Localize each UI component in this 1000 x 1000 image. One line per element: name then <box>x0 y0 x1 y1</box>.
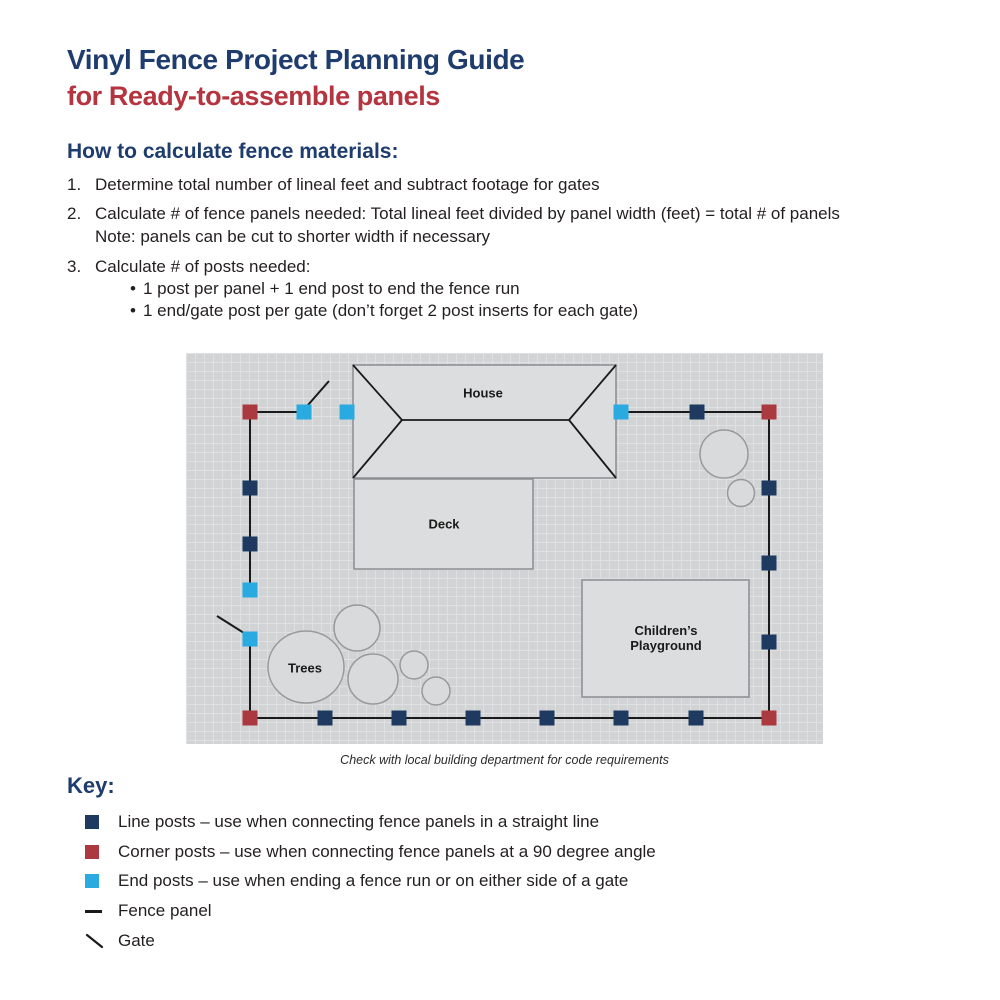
line-post <box>689 711 704 726</box>
key-heading: Key: <box>67 773 115 799</box>
step-text: Calculate # of posts needed: <box>95 255 310 278</box>
step-1: 1. Determine total number of lineal feet… <box>67 173 600 196</box>
tree <box>348 654 398 704</box>
end-post <box>243 632 258 647</box>
bullet-icon: • <box>130 278 143 300</box>
end-post <box>340 405 355 420</box>
diagram-caption: Check with local building department for… <box>186 753 823 767</box>
line-post-swatch <box>85 815 118 829</box>
bullet-text: 1 end/gate post per gate (don’t forget 2… <box>143 300 638 322</box>
line-post <box>466 711 481 726</box>
end-post <box>243 583 258 598</box>
step-text: Calculate # of fence panels needed: Tota… <box>95 202 840 225</box>
line-post <box>318 711 333 726</box>
line-post <box>614 711 629 726</box>
key-item-fence-panel: Fence panel <box>85 899 212 923</box>
bullet-icon: • <box>130 300 143 322</box>
tree <box>334 605 380 651</box>
line-post <box>243 481 258 496</box>
line-post <box>243 537 258 552</box>
playground-label-line2: Playground <box>630 638 702 653</box>
step-3-bullet-1: • 1 post per panel + 1 end post to end t… <box>130 278 520 300</box>
page: Vinyl Fence Project Planning Guide for R… <box>0 0 1000 1000</box>
step-3: 3. Calculate # of posts needed: <box>67 255 310 278</box>
end-post <box>614 405 629 420</box>
house-outline <box>353 365 616 478</box>
end-post-swatch <box>85 874 118 888</box>
step-note: Note: panels can be cut to shorter width… <box>95 225 840 248</box>
line-post <box>762 481 777 496</box>
corner-post <box>762 711 777 726</box>
tree <box>728 480 755 507</box>
corner-post <box>243 405 258 420</box>
gate-lines <box>217 381 329 633</box>
tree <box>700 430 748 478</box>
tree <box>422 677 450 705</box>
corner-post <box>243 711 258 726</box>
page-subtitle: for Ready-to-assemble panels <box>67 81 440 112</box>
key-item-line-posts: Line posts – use when connecting fence p… <box>85 810 599 834</box>
step-number: 2. <box>67 202 95 248</box>
line-post <box>690 405 705 420</box>
playground-label: Children’s Playground <box>630 623 702 653</box>
site-plan-drawing <box>186 353 823 744</box>
page-title: Vinyl Fence Project Planning Guide <box>67 44 524 76</box>
line-post <box>540 711 555 726</box>
tree <box>400 651 428 679</box>
gate-line-top <box>308 381 329 405</box>
key-item-label: Corner posts – use when connecting fence… <box>118 842 656 862</box>
trees-group-right <box>700 430 755 507</box>
end-post-icon <box>85 874 99 888</box>
step-body: Calculate # of fence panels needed: Tota… <box>95 202 840 248</box>
end-post <box>297 405 312 420</box>
house-rect <box>353 365 616 478</box>
key-item-label: Gate <box>118 931 155 951</box>
key-item-corner-posts: Corner posts – use when connecting fence… <box>85 840 656 864</box>
key-item-label: Line posts – use when connecting fence p… <box>118 812 599 832</box>
corner-post <box>762 405 777 420</box>
line-post <box>392 711 407 726</box>
line-post <box>762 635 777 650</box>
step-3-bullet-2: • 1 end/gate post per gate (don’t forget… <box>130 300 638 322</box>
gate-icon <box>85 933 105 949</box>
house-label: House <box>463 386 503 401</box>
key-item-end-posts: End posts – use when ending a fence run … <box>85 869 628 893</box>
step-text: Determine total number of lineal feet an… <box>95 173 600 196</box>
corner-post-icon <box>85 845 99 859</box>
deck-label: Deck <box>428 517 459 532</box>
trees-label: Trees <box>288 661 322 676</box>
fence-panel-swatch <box>85 910 118 913</box>
corner-post-swatch <box>85 845 118 859</box>
bullet-text: 1 post per panel + 1 end post to end the… <box>143 278 520 300</box>
playground-label-line1: Children’s <box>630 623 702 638</box>
line-post <box>762 556 777 571</box>
trees-group <box>268 605 450 705</box>
instructions-heading: How to calculate fence materials: <box>67 140 398 164</box>
key-item-label: Fence panel <box>118 901 212 921</box>
key-item-label: End posts – use when ending a fence run … <box>118 871 628 891</box>
gate-swatch <box>85 933 118 949</box>
gate-line-left <box>217 616 244 633</box>
step-2: 2. Calculate # of fence panels needed: T… <box>67 202 840 248</box>
line-post-icon <box>85 815 99 829</box>
step-number: 3. <box>67 255 95 278</box>
step-number: 1. <box>67 173 95 196</box>
fence-panel-icon <box>85 910 102 913</box>
key-item-gate: Gate <box>85 929 155 953</box>
site-plan-diagram: House Deck Trees Children’s Playground <box>186 353 823 744</box>
